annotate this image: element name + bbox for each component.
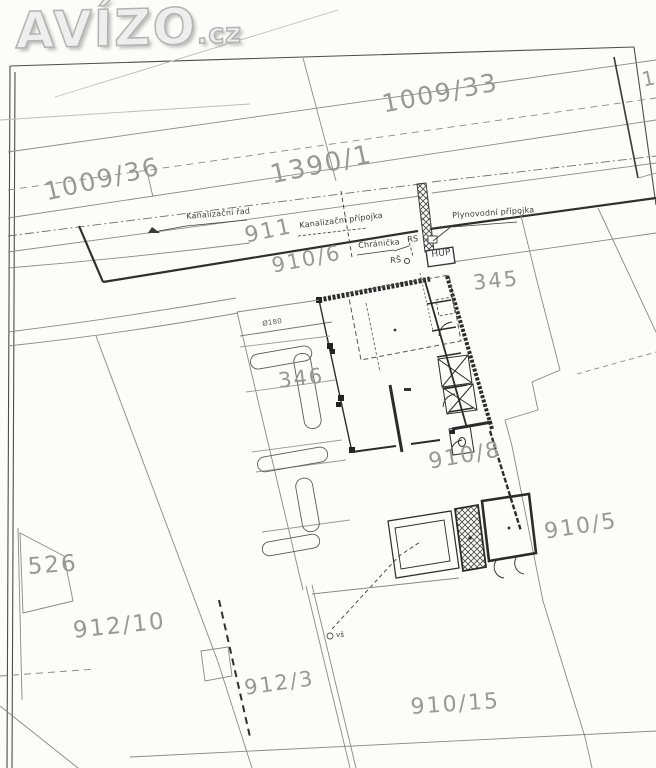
avizo-watermark: AVÍZO.cz (16, 0, 243, 56)
label-water-meter-shaft: vš (336, 632, 344, 639)
parcel-label-346: 346 (277, 365, 325, 391)
parcel-boundaries (0, 208, 656, 768)
fence-line (219, 600, 250, 737)
parcel-label-edge-partial: 10 (640, 64, 656, 90)
watermark-tld: .cz (197, 18, 242, 50)
road-corridor-lines (8, 58, 656, 346)
label-inspection-shaft: RŠ (390, 256, 402, 265)
parcel-label-526: 526 (27, 553, 78, 579)
cadastral-map-scan: AVÍZO.cz 1009/33 10 1009/36 1390/1 911 9… (0, 0, 656, 768)
site-plan-linework (0, 0, 656, 768)
courtyard-features (237, 300, 350, 590)
parcel-label-345: 345 (472, 268, 520, 294)
label-rs: RS (407, 235, 419, 244)
watermark-brand: AVÍZO (16, 0, 198, 60)
building-plan (312, 273, 536, 594)
